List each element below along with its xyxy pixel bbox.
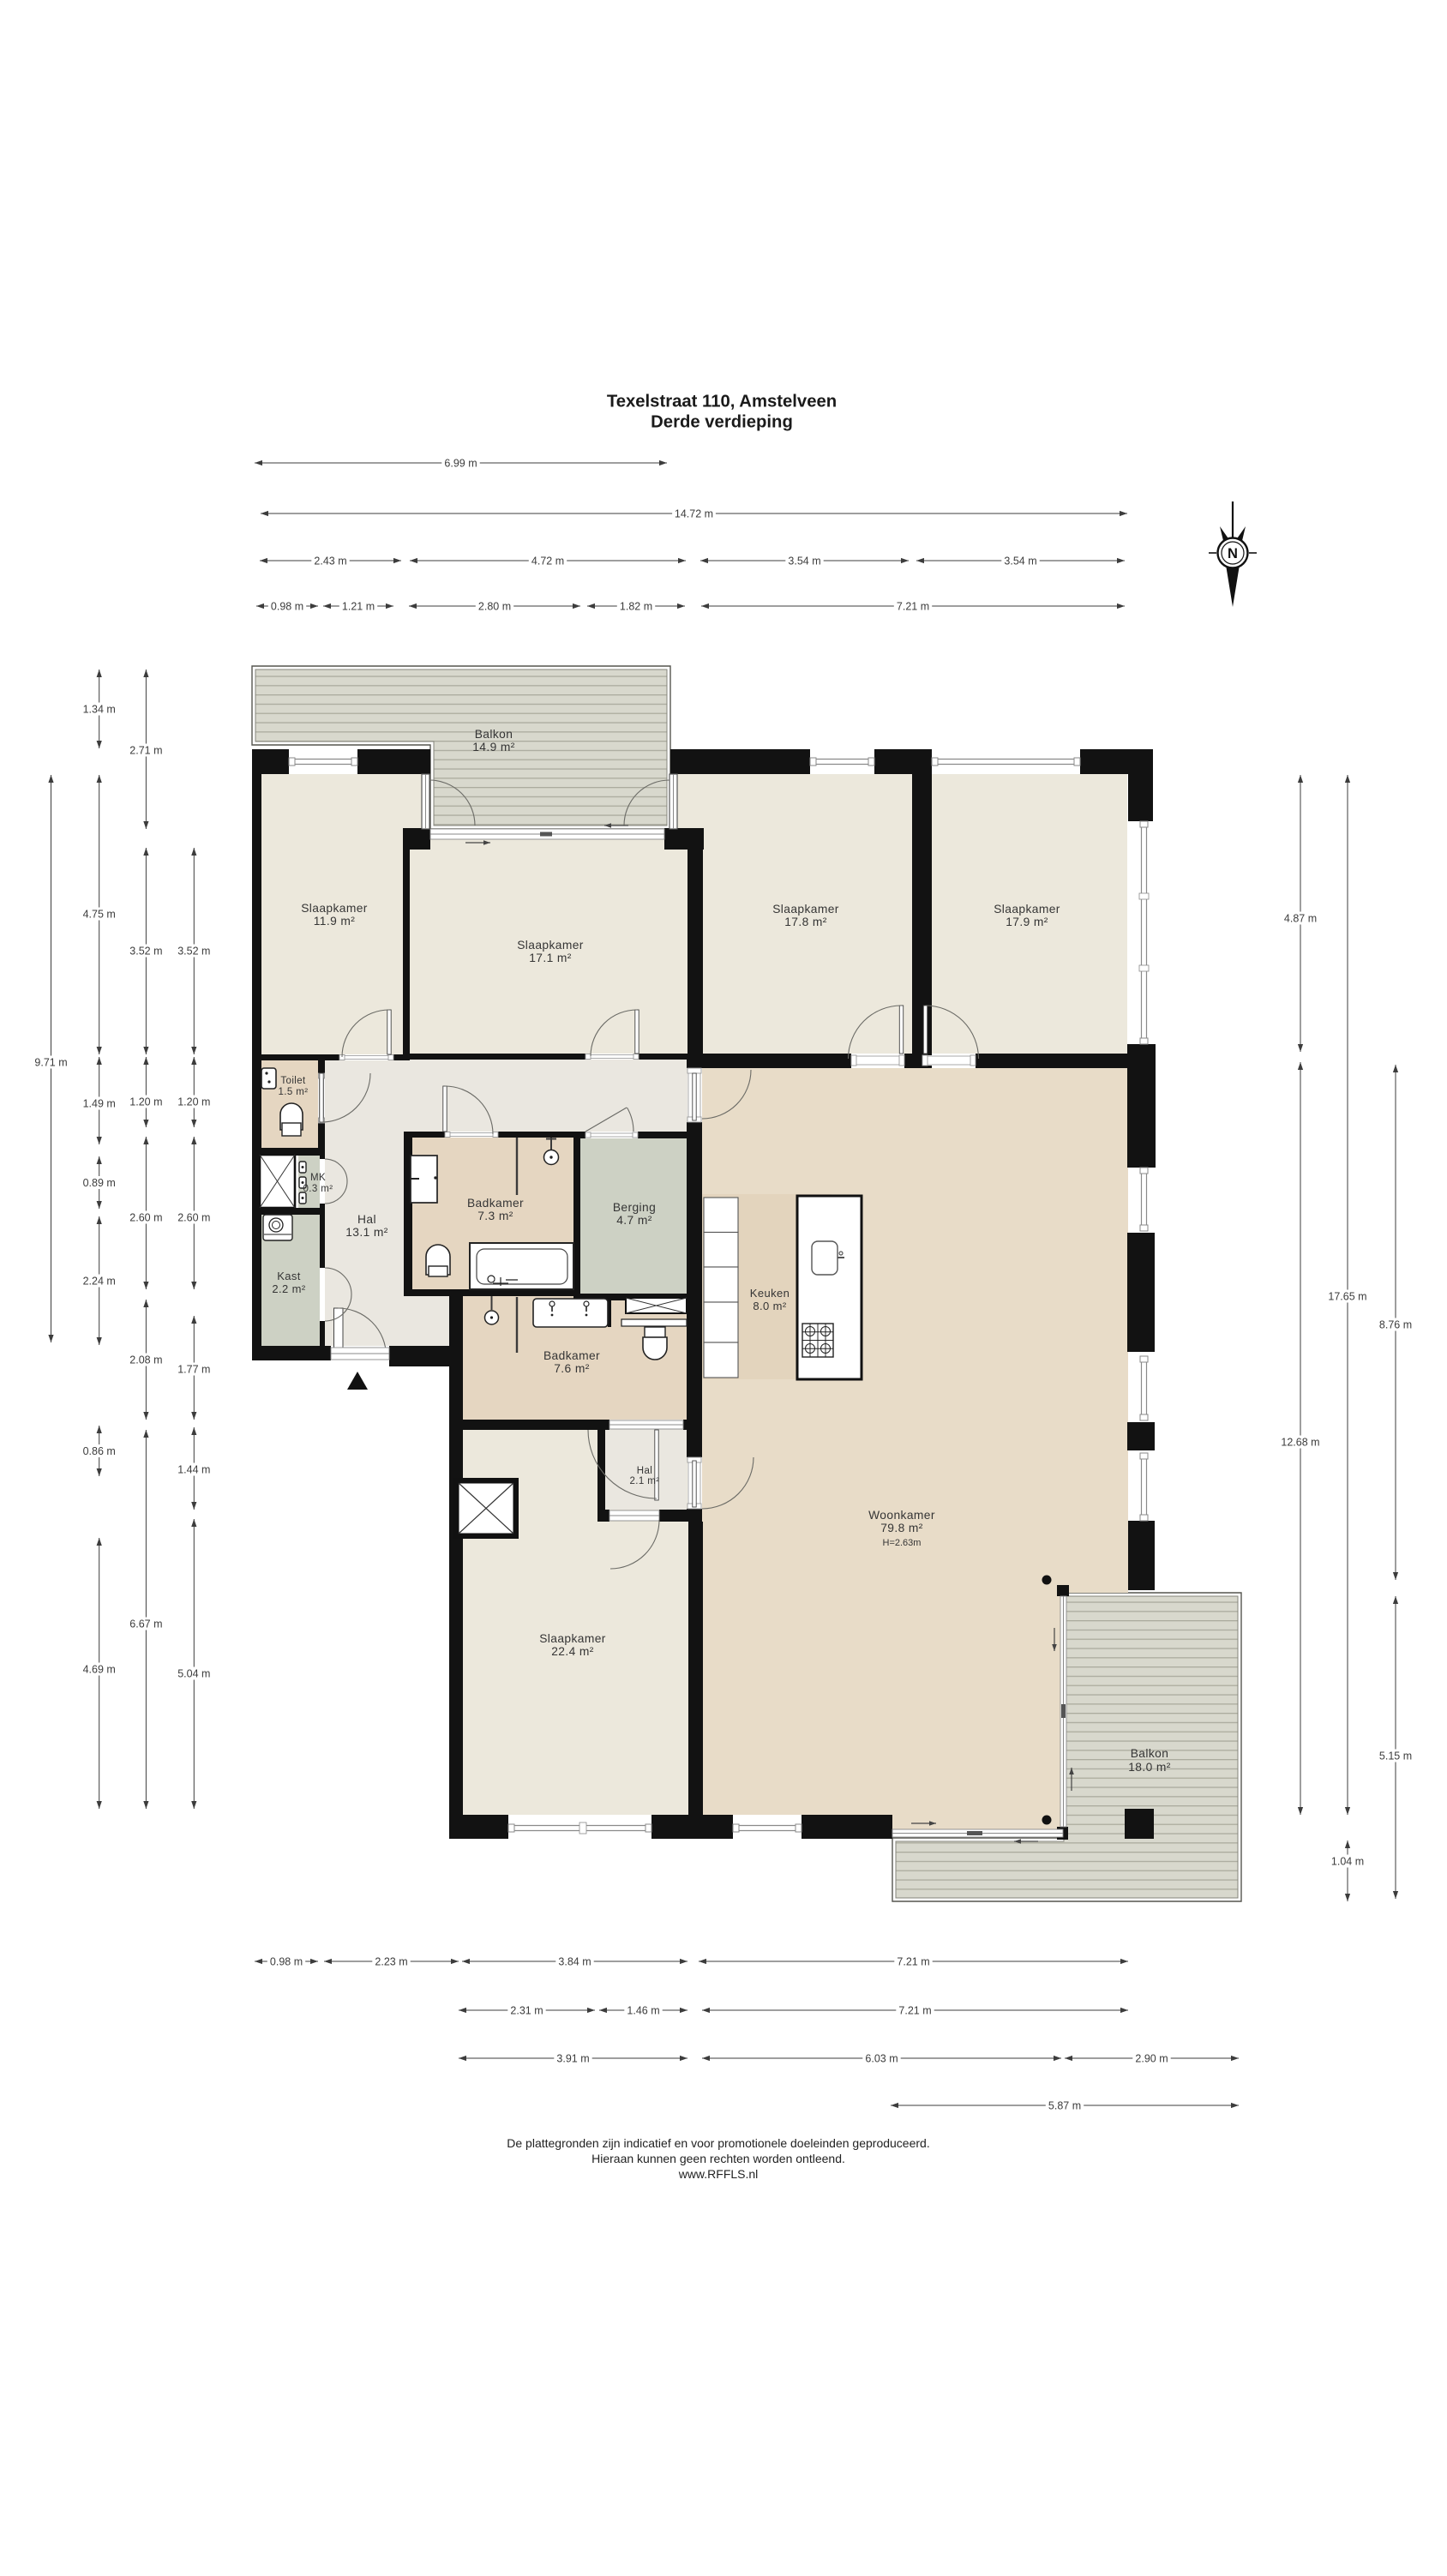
svg-text:Hal: Hal xyxy=(637,1466,652,1476)
svg-text:1.20 m: 1.20 m xyxy=(177,1096,210,1108)
svg-text:0.3 m²: 0.3 m² xyxy=(303,1184,333,1194)
svg-text:2.71 m: 2.71 m xyxy=(129,744,162,756)
svg-text:Woonkamer: Woonkamer xyxy=(868,1509,935,1522)
svg-text:79.8 m²: 79.8 m² xyxy=(880,1522,923,1534)
svg-text:7.21 m: 7.21 m xyxy=(897,1955,929,1967)
svg-text:2.60 m: 2.60 m xyxy=(129,1211,162,1223)
svg-text:13.1 m²: 13.1 m² xyxy=(345,1226,388,1239)
svg-text:3.84 m: 3.84 m xyxy=(558,1955,591,1967)
svg-text:8.76 m: 8.76 m xyxy=(1379,1318,1412,1330)
svg-text:4.72 m: 4.72 m xyxy=(531,555,564,567)
svg-text:H=2.63m: H=2.63m xyxy=(883,1538,922,1548)
svg-text:6.67 m: 6.67 m xyxy=(129,1618,162,1630)
svg-text:5.15 m: 5.15 m xyxy=(1379,1750,1412,1762)
svg-text:7.6 m²: 7.6 m² xyxy=(554,1362,590,1375)
svg-text:1.04 m: 1.04 m xyxy=(1331,1855,1364,1867)
svg-text:Toilet: Toilet xyxy=(280,1076,306,1086)
svg-text:5.87 m: 5.87 m xyxy=(1048,2099,1081,2111)
svg-text:Berging: Berging xyxy=(613,1201,656,1214)
svg-text:7.21 m: 7.21 m xyxy=(898,2004,931,2016)
svg-text:4.87 m: 4.87 m xyxy=(1284,912,1317,924)
svg-text:0.98 m: 0.98 m xyxy=(270,1955,303,1967)
svg-text:2.23 m: 2.23 m xyxy=(375,1955,407,1967)
svg-text:0.98 m: 0.98 m xyxy=(271,600,303,612)
svg-text:9.71 m: 9.71 m xyxy=(34,1056,67,1068)
svg-text:3.52 m: 3.52 m xyxy=(177,945,210,957)
svg-text:1.21 m: 1.21 m xyxy=(342,600,375,612)
svg-text:17.9 m²: 17.9 m² xyxy=(1006,916,1048,928)
svg-text:Hieraan kunnen geen rechten wo: Hieraan kunnen geen rechten worden ontle… xyxy=(591,2152,845,2165)
svg-text:1.34 m: 1.34 m xyxy=(83,703,116,715)
svg-text:Slaapkamer: Slaapkamer xyxy=(539,1632,606,1645)
svg-text:7.3 m²: 7.3 m² xyxy=(477,1210,513,1222)
svg-text:6.03 m: 6.03 m xyxy=(865,2052,898,2064)
svg-text:1.44 m: 1.44 m xyxy=(177,1463,210,1475)
svg-text:Hal: Hal xyxy=(357,1213,376,1226)
svg-text:6.99 m: 6.99 m xyxy=(444,457,477,469)
svg-text:Kast: Kast xyxy=(277,1270,301,1282)
svg-text:Badkamer: Badkamer xyxy=(467,1197,524,1210)
svg-text:2.1 m²: 2.1 m² xyxy=(630,1476,660,1486)
svg-text:Slaapkamer: Slaapkamer xyxy=(994,903,1060,916)
svg-text:2.80 m: 2.80 m xyxy=(478,600,511,612)
svg-text:7.21 m: 7.21 m xyxy=(897,600,929,612)
svg-text:De plattegronden zijn indicati: De plattegronden zijn indicatief en voor… xyxy=(507,2136,929,2150)
svg-text:Balkon: Balkon xyxy=(1131,1747,1169,1760)
svg-text:Keuken: Keuken xyxy=(750,1287,790,1300)
svg-text:1.82 m: 1.82 m xyxy=(620,600,652,612)
svg-text:0.86 m: 0.86 m xyxy=(83,1445,116,1457)
svg-text:1.49 m: 1.49 m xyxy=(83,1097,116,1109)
svg-text:4.7 m²: 4.7 m² xyxy=(616,1214,652,1227)
svg-text:3.52 m: 3.52 m xyxy=(129,945,162,957)
svg-text:3.54 m: 3.54 m xyxy=(788,555,820,567)
svg-text:3.54 m: 3.54 m xyxy=(1004,555,1036,567)
svg-text:N: N xyxy=(1228,546,1238,561)
svg-text:0.89 m: 0.89 m xyxy=(83,1177,116,1189)
svg-text:12.68 m: 12.68 m xyxy=(1281,1436,1319,1448)
svg-text:Derde verdieping: Derde verdieping xyxy=(651,413,793,432)
svg-text:Texelstraat 110, Amstelveen: Texelstraat 110, Amstelveen xyxy=(607,393,837,411)
svg-text:3.91 m: 3.91 m xyxy=(556,2052,589,2064)
svg-text:2.43 m: 2.43 m xyxy=(314,555,346,567)
svg-text:14.72 m: 14.72 m xyxy=(675,507,713,519)
svg-text:1.5 m²: 1.5 m² xyxy=(279,1087,309,1097)
svg-text:11.9 m²: 11.9 m² xyxy=(314,915,356,928)
svg-text:2.31 m: 2.31 m xyxy=(510,2004,543,2016)
svg-text:Slaapkamer: Slaapkamer xyxy=(517,939,584,952)
svg-text:17.8 m²: 17.8 m² xyxy=(784,916,827,928)
svg-text:2.2 m²: 2.2 m² xyxy=(272,1282,306,1295)
svg-text:Slaapkamer: Slaapkamer xyxy=(301,902,368,915)
svg-text:Badkamer: Badkamer xyxy=(543,1349,600,1362)
svg-text:14.9 m²: 14.9 m² xyxy=(472,741,515,754)
svg-text:Balkon: Balkon xyxy=(475,728,513,741)
svg-text:2.60 m: 2.60 m xyxy=(177,1211,210,1223)
svg-text:17.65 m: 17.65 m xyxy=(1328,1290,1366,1302)
svg-text:8.0 m²: 8.0 m² xyxy=(753,1300,787,1312)
svg-text:MK: MK xyxy=(310,1173,326,1183)
svg-text:2.24 m: 2.24 m xyxy=(83,1275,116,1287)
svg-text:2.08 m: 2.08 m xyxy=(129,1354,162,1366)
svg-text:17.1 m²: 17.1 m² xyxy=(529,952,572,964)
svg-text:1.20 m: 1.20 m xyxy=(129,1096,162,1108)
svg-text:1.77 m: 1.77 m xyxy=(177,1363,210,1375)
svg-text:5.04 m: 5.04 m xyxy=(177,1667,210,1679)
svg-text:4.69 m: 4.69 m xyxy=(83,1663,116,1675)
svg-text:4.75 m: 4.75 m xyxy=(83,908,116,920)
svg-text:22.4 m²: 22.4 m² xyxy=(551,1645,594,1658)
svg-text:18.0 m²: 18.0 m² xyxy=(1128,1761,1171,1774)
svg-text:www.RFFLS.nl: www.RFFLS.nl xyxy=(678,2167,759,2181)
svg-text:2.90 m: 2.90 m xyxy=(1135,2052,1168,2064)
svg-text:Slaapkamer: Slaapkamer xyxy=(772,903,839,916)
svg-text:1.46 m: 1.46 m xyxy=(627,2004,659,2016)
